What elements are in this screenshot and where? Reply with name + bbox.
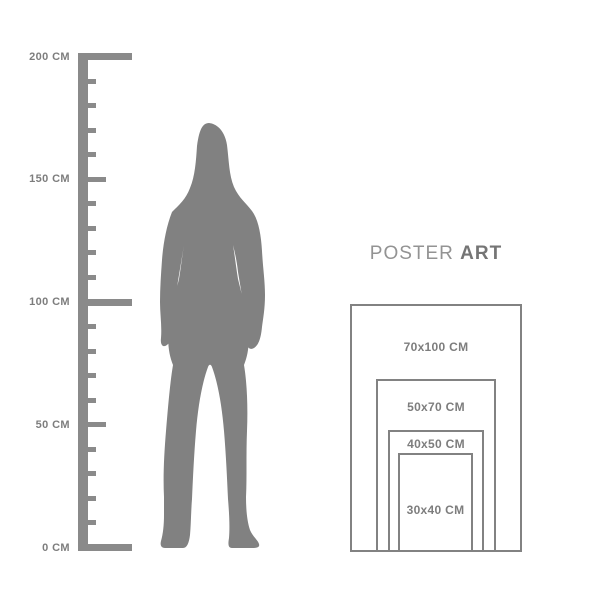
ruler-tick	[78, 324, 96, 329]
ruler-tick	[78, 471, 96, 476]
title-word-poster: POSTER	[370, 243, 454, 264]
ruler-tick	[78, 79, 96, 84]
poster-size-label-30x40: 30x40 CM	[400, 503, 471, 517]
ruler-tick	[78, 250, 96, 255]
ruler-tick	[78, 103, 96, 108]
ruler-tick	[78, 544, 132, 551]
ruler-tick	[78, 496, 96, 501]
ruler-tick	[78, 398, 96, 403]
ruler-tick	[78, 177, 106, 182]
poster-size-label-50x70: 50x70 CM	[378, 400, 494, 414]
size-guide-infographic: 200 CM 150 CM 100 CM 50 CM 0 CM POSTER A…	[0, 0, 600, 600]
ruler-tick	[78, 422, 106, 427]
poster-size-label-40x50: 40x50 CM	[390, 437, 482, 451]
poster-art-title: POSTER ART	[350, 243, 522, 265]
ruler-tick	[78, 373, 96, 378]
title-word-art: ART	[460, 243, 502, 264]
ruler-tick	[78, 128, 96, 133]
ruler-tick	[78, 447, 96, 452]
ruler-label-50cm: 50 CM	[0, 417, 70, 433]
poster-size-label-70x100: 70x100 CM	[352, 340, 520, 354]
ruler-tick	[78, 299, 132, 306]
ruler-tick	[78, 226, 96, 231]
poster-rect-30x40: 30x40 CM	[398, 453, 473, 552]
ruler-label-200cm: 200 CM	[0, 49, 70, 65]
woman-silhouette	[145, 115, 280, 565]
ruler-tick	[78, 520, 96, 525]
ruler-tick	[78, 53, 132, 60]
ruler-tick	[78, 201, 96, 206]
ruler-tick	[78, 275, 96, 280]
ruler-label-150cm: 150 CM	[0, 171, 70, 187]
ruler-label-0cm: 0 CM	[0, 540, 70, 556]
ruler-tick	[78, 152, 96, 157]
ruler-tick	[78, 349, 96, 354]
ruler-label-100cm: 100 CM	[0, 294, 70, 310]
